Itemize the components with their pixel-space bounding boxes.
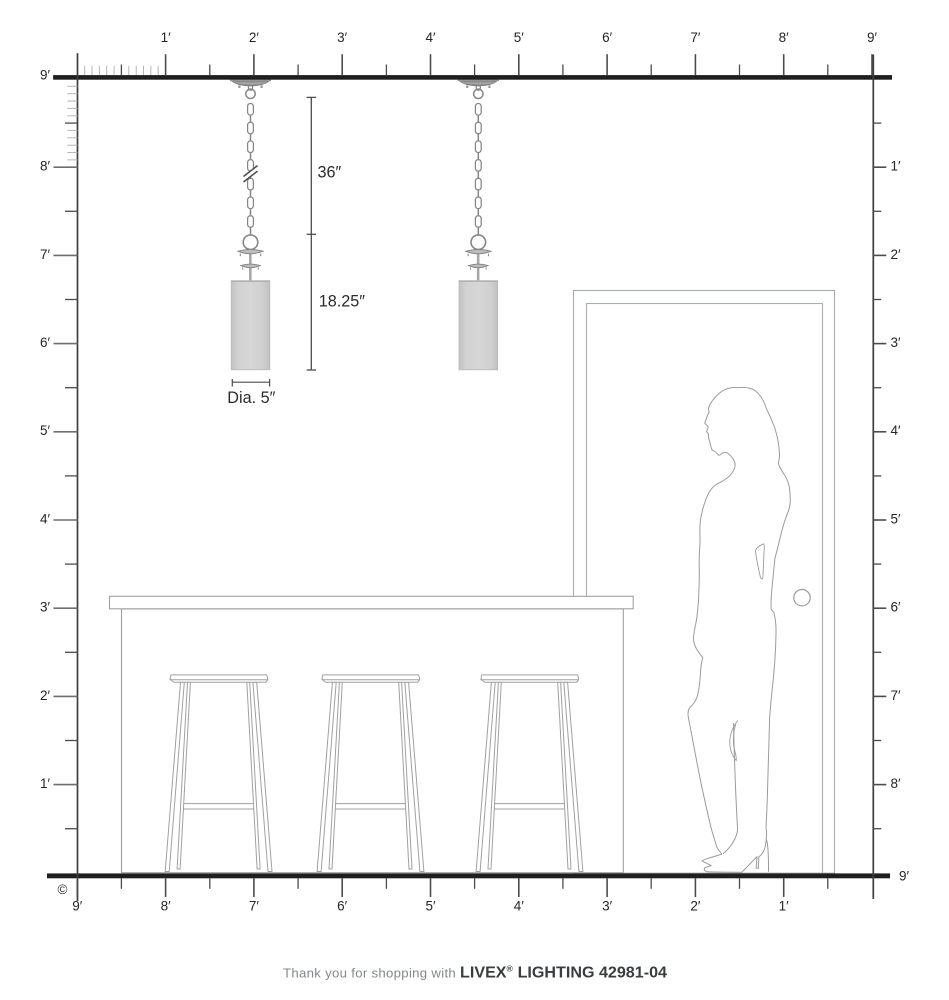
svg-text:1′: 1′	[161, 30, 172, 45]
svg-text:8′: 8′	[779, 30, 790, 45]
svg-text:5′: 5′	[514, 30, 525, 45]
svg-text:2′: 2′	[690, 899, 701, 914]
svg-text:6′: 6′	[337, 899, 348, 914]
svg-text:4′: 4′	[40, 511, 51, 526]
svg-text:3′: 3′	[602, 899, 613, 914]
svg-text:Dia. 5″: Dia. 5″	[227, 389, 275, 407]
svg-text:©: ©	[58, 882, 68, 897]
svg-text:5′: 5′	[40, 423, 51, 438]
svg-text:5′: 5′	[425, 899, 436, 914]
svg-text:8′: 8′	[40, 159, 51, 174]
svg-text:5′: 5′	[891, 511, 902, 526]
svg-text:8′: 8′	[161, 899, 172, 914]
svg-text:3′: 3′	[40, 600, 51, 615]
svg-text:9′: 9′	[867, 30, 878, 45]
svg-text:2′: 2′	[40, 688, 51, 703]
svg-text:6′: 6′	[40, 335, 51, 350]
svg-text:7′: 7′	[690, 30, 701, 45]
svg-text:3′: 3′	[891, 335, 902, 350]
svg-text:1′: 1′	[891, 159, 902, 174]
svg-text:2′: 2′	[249, 30, 260, 45]
svg-text:4′: 4′	[425, 30, 436, 45]
svg-text:8′: 8′	[891, 776, 902, 791]
svg-text:36″: 36″	[318, 164, 342, 182]
svg-text:Thank you for shopping with LI: Thank you for shopping with LIVEX® LIGHT…	[283, 964, 667, 982]
svg-text:4′: 4′	[514, 899, 525, 914]
svg-text:6′: 6′	[602, 30, 613, 45]
svg-text:1′: 1′	[40, 776, 51, 791]
svg-text:4′: 4′	[891, 423, 902, 438]
svg-text:7′: 7′	[249, 899, 260, 914]
svg-text:7′: 7′	[40, 247, 51, 262]
svg-text:9′: 9′	[899, 869, 910, 884]
svg-text:2′: 2′	[891, 247, 902, 262]
svg-text:6′: 6′	[891, 600, 902, 615]
svg-text:7′: 7′	[891, 688, 902, 703]
svg-text:3′: 3′	[337, 30, 348, 45]
svg-text:1′: 1′	[779, 899, 790, 914]
svg-text:9′: 9′	[40, 68, 51, 83]
svg-text:9′: 9′	[72, 899, 83, 914]
svg-text:18.25″: 18.25″	[319, 293, 366, 311]
